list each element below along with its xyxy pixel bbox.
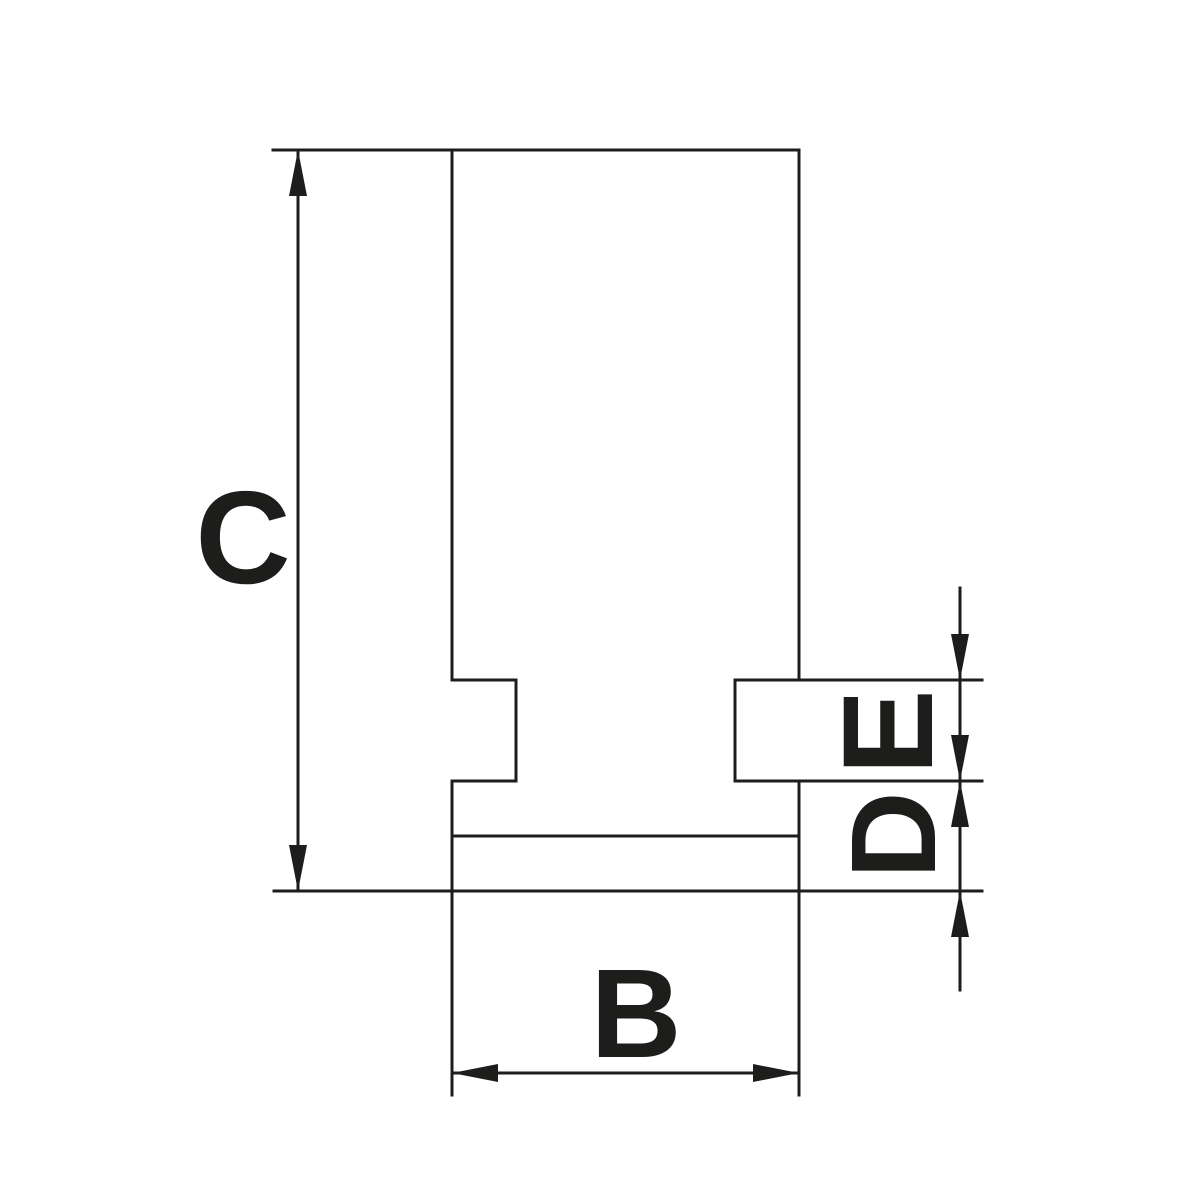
dim-label-e: E [817,689,960,774]
dim-label-c: C [195,464,290,611]
e-arrow-top [951,634,969,680]
c-arrow-top [289,150,307,196]
b-arrow-left [452,1064,498,1082]
jaw-drawing-svg: CBED [0,0,1200,1200]
dim-label-d: D [825,791,961,878]
dim-label-b: B [591,943,682,1084]
chuck-jaw-technical-drawing: CBED [0,0,1200,1200]
c-arrow-bottom [289,845,307,891]
b-arrow-right [753,1064,799,1082]
d-arrow-bottom [951,891,969,937]
